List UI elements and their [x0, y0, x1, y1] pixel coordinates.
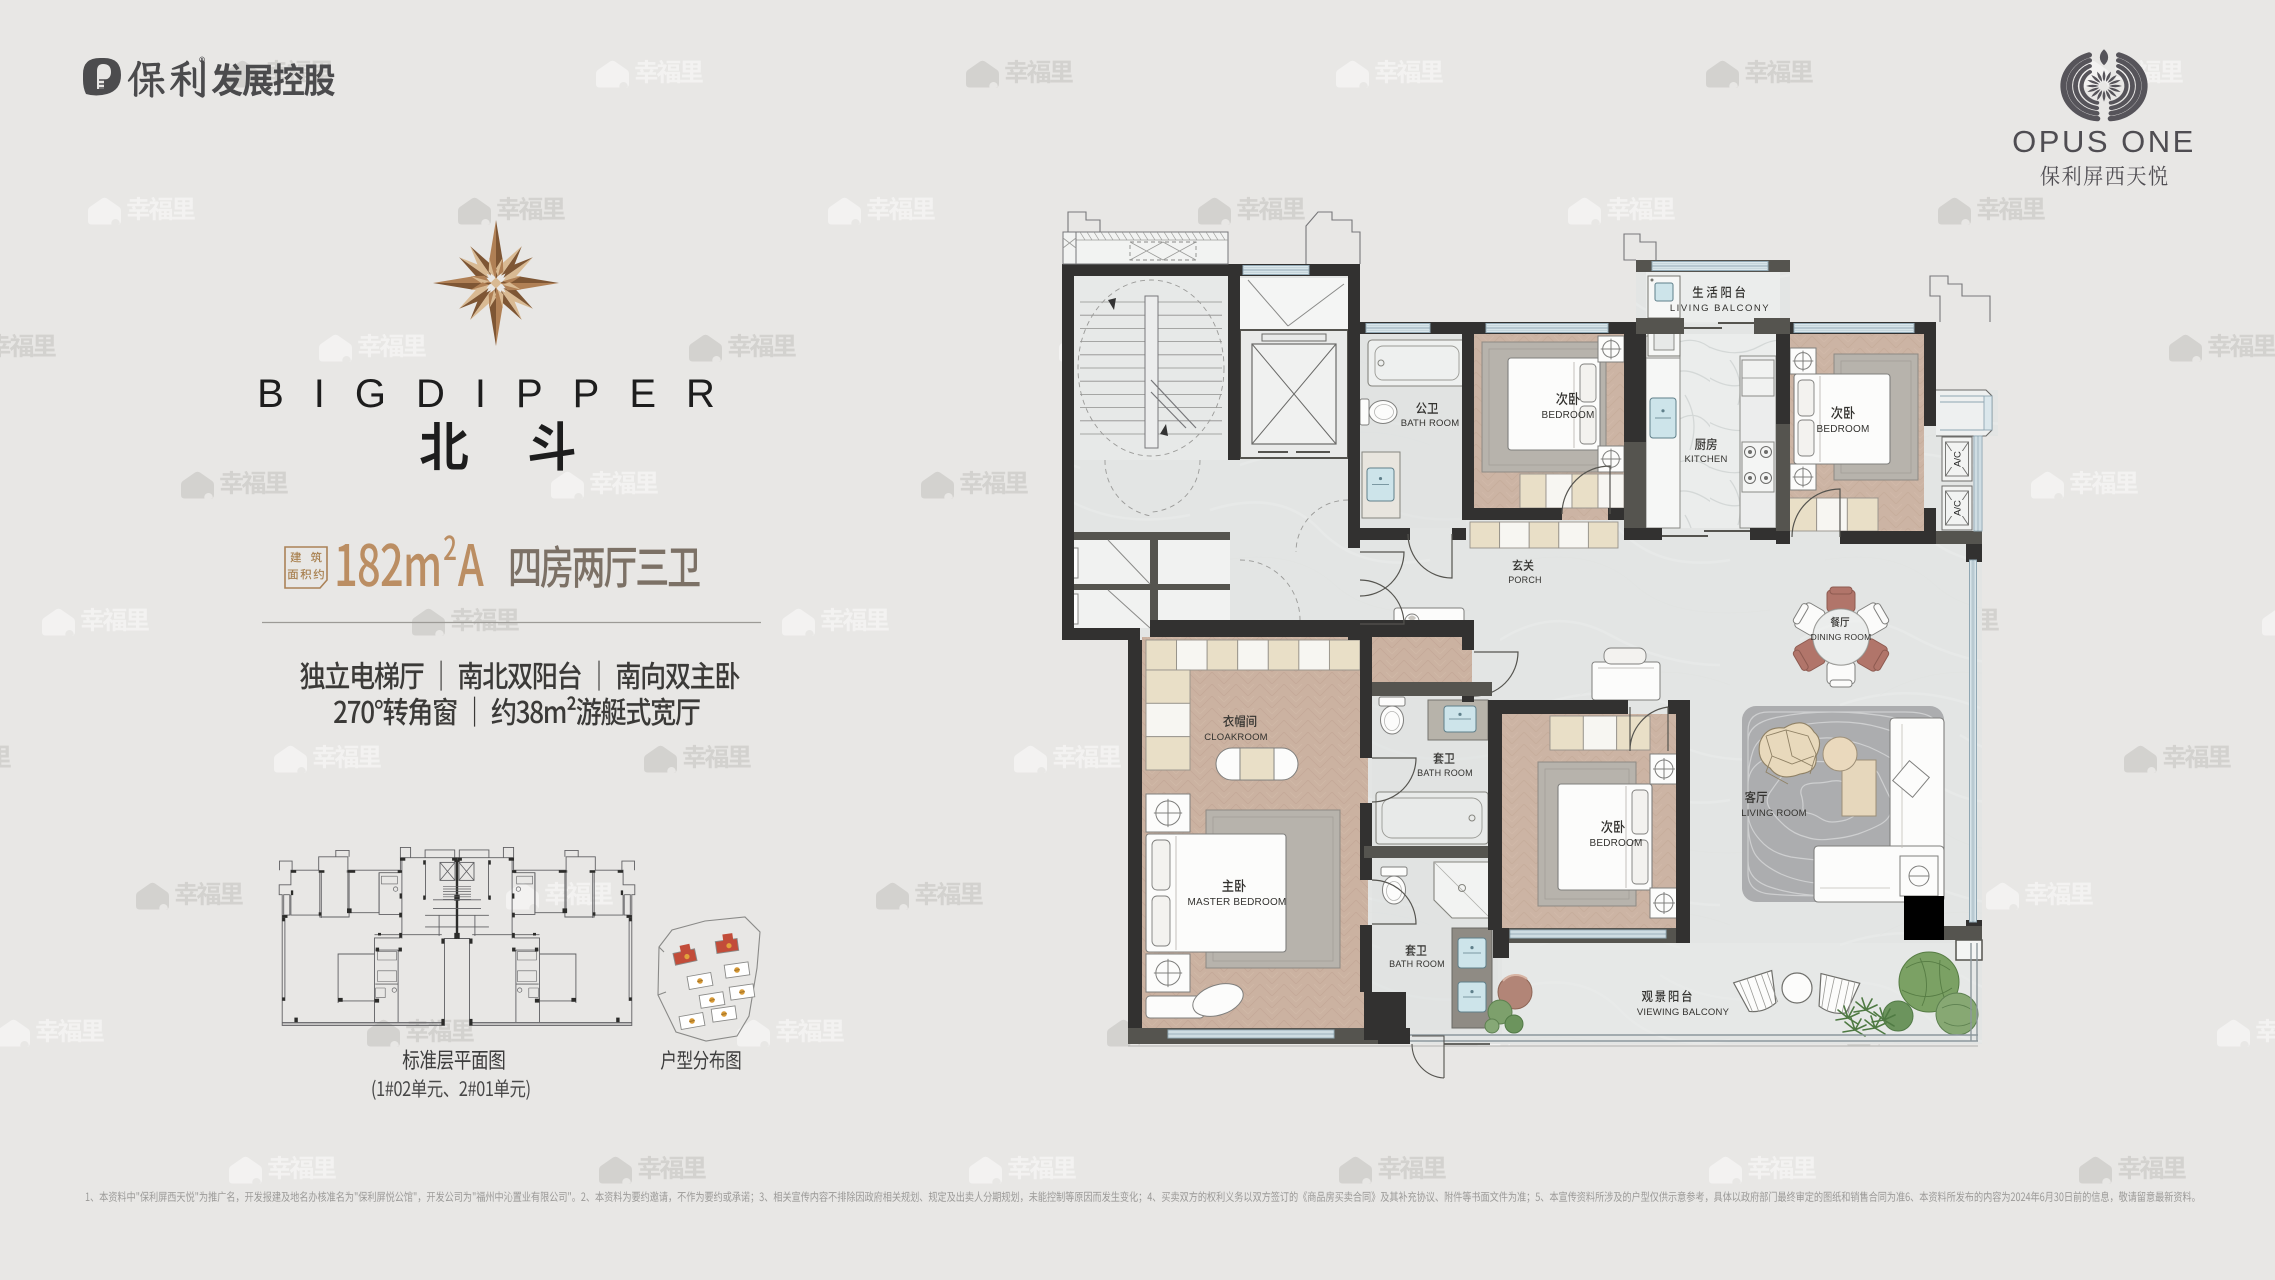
svg-text:MASTER BEDROOM: MASTER BEDROOM — [1188, 897, 1287, 908]
svg-text:BATH ROOM: BATH ROOM — [1389, 959, 1445, 969]
svg-text:LIVING ROOM: LIVING ROOM — [1741, 808, 1807, 819]
svg-text:BIGDIPPER: BIGDIPPER — [257, 372, 745, 416]
svg-text:LIVING BALCONY: LIVING BALCONY — [1670, 303, 1770, 314]
svg-text:OPUS ONE: OPUS ONE — [2012, 124, 2196, 159]
svg-text:BATH ROOM: BATH ROOM — [1401, 418, 1460, 429]
svg-text:BEDROOM: BEDROOM — [1816, 424, 1869, 435]
svg-text:KITCHEN: KITCHEN — [1684, 454, 1727, 465]
svg-text:BEDROOM: BEDROOM — [1541, 410, 1594, 421]
svg-text:CLOAKROOM: CLOAKROOM — [1204, 732, 1268, 743]
svg-text:PORCH: PORCH — [1508, 575, 1542, 585]
svg-text:BATH ROOM: BATH ROOM — [1417, 768, 1473, 778]
svg-text:DINING ROOM: DINING ROOM — [1811, 632, 1872, 642]
svg-text:BEDROOM: BEDROOM — [1589, 838, 1642, 849]
svg-text:VIEWING BALCONY: VIEWING BALCONY — [1637, 1007, 1730, 1018]
